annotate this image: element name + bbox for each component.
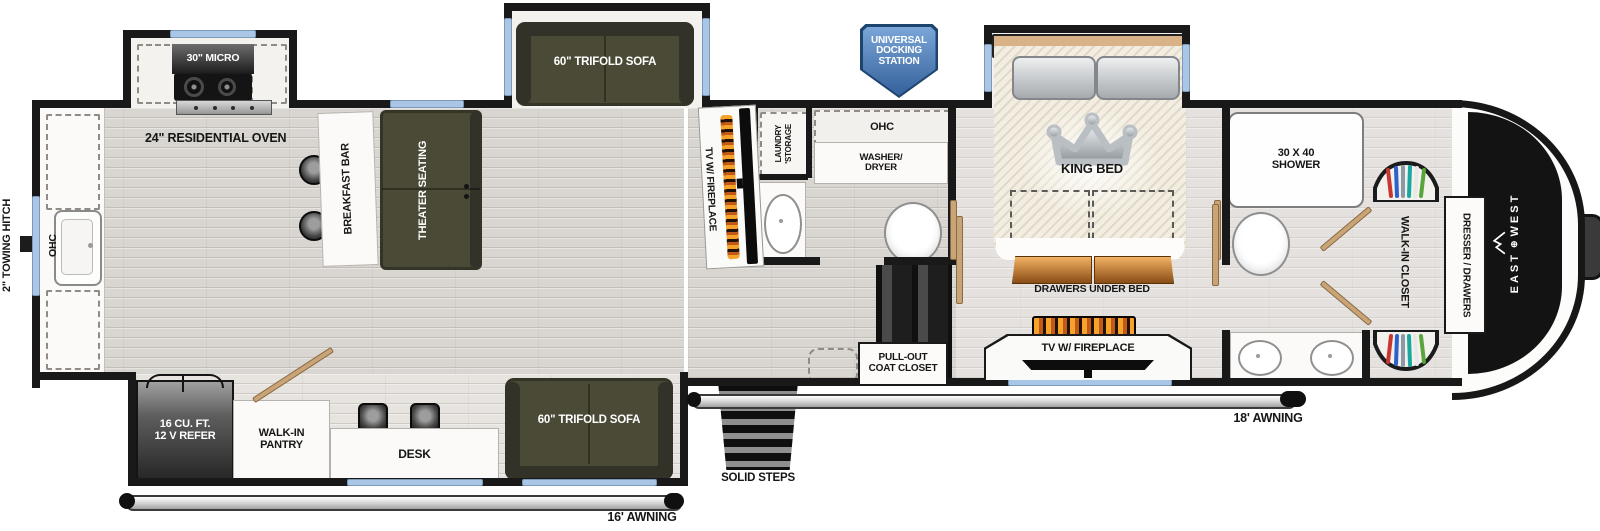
sofa-bottom-label: 60" TRIFOLD SOFA [519, 414, 659, 426]
refer-door-split [182, 376, 184, 392]
wall-kitchen-slide-right [289, 30, 297, 108]
floorplan-canvas: 2" TOWING HITCH OHC 30" MICRO 24" RESIDE… [0, 0, 1600, 531]
solid-steps-label: SOLID STEPS [698, 472, 818, 484]
window-sofa-slide-right [702, 18, 710, 96]
refer-handle-arc [146, 374, 224, 388]
half-bath-sink [764, 194, 802, 254]
stove-burner-left [184, 77, 204, 97]
kitchen-ohc-dashed-top [46, 114, 100, 210]
wall-frontbath-lower [1222, 330, 1230, 386]
brand-logo: EAST ⊕ WEST [1488, 163, 1524, 323]
vanity-faucet-left [1256, 354, 1260, 358]
sofa-top-arm-right [679, 24, 694, 104]
laundry-label-2: 'STORAGE [785, 124, 793, 164]
awning-18-bar [692, 394, 1296, 409]
wall-bottom-slide-right [680, 372, 688, 486]
pantry-label-2: PANTRY [260, 440, 303, 452]
window-kitchen-slide [170, 30, 256, 38]
window-bottom-slide-b [522, 479, 657, 486]
window-sofa-slide-left [504, 18, 512, 96]
wall-bed-slide-top [984, 25, 1190, 33]
bed-pillow-right [1096, 56, 1180, 100]
walk-in-pantry: WALK-IN PANTRY [233, 400, 330, 480]
walk-in-closet-label: WALK-IN CLOSET [1398, 202, 1410, 322]
awning-18-label: 18' AWNING [1203, 412, 1333, 425]
wall-frontbath-upper [1222, 108, 1230, 265]
brand-mark-icon: ⊕ [1509, 240, 1520, 248]
tv-bedroom-stand [1084, 370, 1092, 378]
awning-16-cap-right [664, 493, 684, 509]
wall-bottom-left [32, 372, 136, 380]
mountain-icon [1492, 230, 1507, 256]
tv-living-mount [737, 178, 744, 188]
wall-kitchen-slide-left [123, 30, 131, 108]
half-bath-toilet [884, 202, 942, 264]
washer-dryer: WASHER/ DRYER [814, 142, 948, 184]
closet-hangers-top-icon [1372, 158, 1440, 202]
vanity-faucet-right [1328, 354, 1332, 358]
king-bed-label: KING BED [1032, 162, 1152, 176]
bedroom-door [956, 216, 963, 304]
theater-label: THEATER SEATING [418, 130, 430, 250]
wall-top-1 [32, 100, 131, 108]
docking-line-3: STATION [878, 57, 919, 68]
window-bedroom-bottom [1008, 379, 1172, 386]
towing-hitch-label: 2" TOWING HITCH [2, 185, 14, 305]
oven-knob [231, 106, 235, 110]
wall-vanity-right [1362, 330, 1370, 386]
tv-fireplace-console-bedroom: TV W/ FIREPLACE [984, 334, 1192, 380]
closet-hangers-bottom-icon [1372, 330, 1440, 374]
vanity-sink-right [1310, 340, 1354, 376]
wall-bottom-slide-left [128, 372, 136, 486]
dresser-drawers-label: DRESSER / DRAWERS [1460, 213, 1471, 317]
oven-knob [213, 106, 217, 110]
shower-label-2: SHOWER [1272, 160, 1320, 172]
kitchen-sink-faucet [88, 243, 93, 248]
half-bath-faucet [779, 219, 783, 223]
drawers-under-bed-label: DRAWERS UNDER BED [1022, 284, 1162, 295]
window-bed-slide-right [1182, 44, 1190, 92]
window-bed-slide-left [984, 44, 992, 92]
laundry-storage-cabinet: LAUNDRY 'STORAGE [760, 112, 808, 176]
docking-station-badge: UNIVERSAL DOCKING STATION [860, 24, 938, 98]
window-theater [390, 100, 464, 108]
desk: DESK [330, 428, 499, 480]
sofa-top-seam [604, 36, 606, 102]
theater-cupholder-1 [464, 184, 469, 189]
awning-18-cap-right [1280, 391, 1306, 407]
sofa-top-label: 60" TRIFOLD SOFA [535, 56, 675, 68]
laundry-label-1: LAUNDRY [775, 125, 783, 162]
brand-east: EAST [1509, 252, 1521, 293]
stove-burner-right [218, 78, 236, 96]
bath-ohc-label: OHC [870, 122, 894, 134]
awning-16-cap-left [119, 493, 135, 509]
microwave-label: 30" MICRO [187, 53, 240, 64]
pull-out-coat-closet: PULL-OUT COAT CLOSET [858, 342, 948, 386]
microwave: 30" MICRO [172, 44, 254, 74]
sofa-bottom-arm-right [658, 382, 673, 478]
theater-cupholder-2 [464, 194, 469, 199]
wall-bath-bottom-b [884, 257, 956, 265]
breakfast-bar: BREAKFAST BAR [317, 111, 378, 267]
dresser-drawers: DRESSER / DRAWERS [1444, 196, 1486, 334]
awning-16-bar [126, 495, 682, 511]
washer-label-2: DRYER [865, 163, 897, 173]
breakfast-bar-label: BREAKFAST BAR [341, 143, 356, 235]
front-bath-door [1212, 204, 1219, 286]
sofa-top-arm-left [516, 24, 531, 104]
kitchen-slide-counter-right [251, 44, 287, 104]
oven-knob [250, 106, 254, 110]
tv-bedroom-icon [1022, 360, 1154, 370]
awning-16-label: 16' AWNING [577, 511, 707, 524]
refer-label-2: 12 V REFER [155, 431, 216, 443]
kitchen-ohc-dashed-bottom [46, 290, 100, 370]
brand-west: WEST [1509, 193, 1521, 237]
wall-bath-divider-v [806, 108, 812, 178]
bed-wood-drawer-left [1012, 256, 1092, 284]
bath-ohc-cabinet: OHC [814, 110, 950, 146]
coat-closet-label-2: COAT CLOSET [869, 364, 938, 375]
sofa-top-back [518, 22, 692, 36]
shower: 30 X 40 SHOWER [1228, 112, 1364, 208]
wall-bath-divider-h [756, 174, 808, 180]
theater-backrest [470, 112, 480, 268]
tv-console-bedroom-face: TV W/ FIREPLACE [986, 336, 1190, 380]
oven-drawer-front [176, 100, 272, 115]
theater-seating [380, 110, 482, 270]
bed-pillow-left [1012, 56, 1096, 100]
wall-sofa-slide-top [504, 3, 710, 11]
wall-top-4 [1182, 100, 1462, 108]
brand-logo-text: EAST ⊕ WEST [1509, 193, 1521, 294]
refrigerator: 16 CU. FT. 12 V REFER [136, 380, 234, 482]
awning-18-cap-left [687, 392, 701, 407]
tv-fireplace-bedroom-label: TV W/ FIREPLACE [1018, 343, 1158, 355]
kitchen-ohc-label: OHC [48, 228, 59, 264]
oven-label: 24" RESIDENTIAL OVEN [145, 132, 285, 145]
bed-wood-drawer-right [1094, 256, 1174, 284]
window-left-wall [32, 196, 40, 296]
tv-fireplace-console-living: TV W/ FIREPLACE [698, 105, 764, 270]
docking-station-badge-inner: UNIVERSAL DOCKING STATION [863, 27, 936, 96]
bedroom-wardrobe-left [950, 200, 957, 260]
sofa-bottom-arm-left [505, 382, 520, 478]
desk-label: DESK [398, 448, 431, 461]
front-bath-toilet [1232, 212, 1290, 276]
vanity-sink-left [1238, 340, 1282, 376]
oven-knob [194, 106, 198, 110]
window-bottom-slide-a [347, 479, 483, 486]
